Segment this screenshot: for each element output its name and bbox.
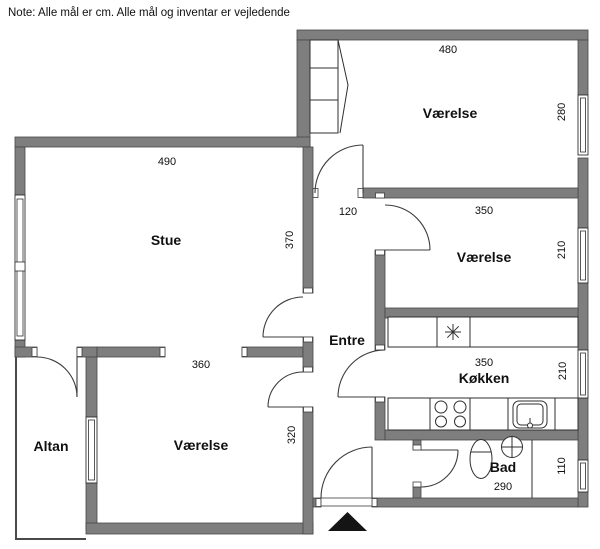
wall-segment xyxy=(86,523,313,534)
window xyxy=(578,460,588,492)
jamb xyxy=(304,407,313,412)
door-vaerelse-mid xyxy=(385,205,430,250)
jamb xyxy=(376,345,385,350)
room-label-vaerelse-top: Værelse xyxy=(423,105,478,121)
wall-segment xyxy=(297,30,588,40)
dim-stue-depth: 370 xyxy=(284,231,296,249)
wall-segment xyxy=(578,492,588,507)
kitchen-cabinet-row xyxy=(388,317,578,347)
wall-segment xyxy=(242,347,303,357)
room-label-koekken: Køkken xyxy=(459,370,510,386)
wall-segment xyxy=(15,137,310,147)
jamb xyxy=(376,250,385,255)
wardrobe-icon xyxy=(310,40,348,133)
jamb xyxy=(304,367,313,372)
toilet-icon xyxy=(470,440,492,479)
jamb xyxy=(358,189,363,198)
dim-koekken-width: 350 xyxy=(475,357,493,369)
dim-bad-width: 290 xyxy=(494,481,512,493)
wall-segment xyxy=(375,397,385,440)
wall-segment xyxy=(578,40,588,95)
dim-bad-depth: 110 xyxy=(556,457,568,475)
dim-vaerelse-mid-depth: 210 xyxy=(556,241,568,259)
dim-stue-width: 490 xyxy=(158,156,176,168)
door-vaerelse-bottom xyxy=(268,372,303,407)
wall-segment xyxy=(303,147,313,293)
dim-entre-width: 120 xyxy=(339,206,357,218)
dim-vaerelse-top-width: 480 xyxy=(439,44,457,56)
window xyxy=(578,95,588,155)
plan-note: Note: Alle mål er cm. Alle mål og invent… xyxy=(8,7,290,19)
kitchen-sink-icon xyxy=(513,401,547,428)
floor-plan: Note: Alle mål er cm. Alle mål og invent… xyxy=(0,0,600,549)
wall-segment xyxy=(363,188,578,198)
wall-segment xyxy=(372,498,578,507)
wall-segment xyxy=(413,487,421,498)
dim-koekken-depth: 210 xyxy=(557,362,569,380)
window xyxy=(578,228,588,283)
window xyxy=(578,350,588,398)
jamb xyxy=(413,482,421,487)
wall-segment xyxy=(86,357,97,417)
door-vaerelse-top xyxy=(315,145,363,193)
jamb xyxy=(32,348,37,357)
wall-segment xyxy=(375,250,385,350)
jamb xyxy=(316,499,321,507)
room-label-vaerelse-mid: Værelse xyxy=(457,249,512,265)
wall-segment xyxy=(578,158,588,228)
room-label-altan: Altan xyxy=(34,438,69,454)
entrance-arrow-icon xyxy=(328,512,367,531)
door-altan xyxy=(37,357,77,397)
jamb xyxy=(372,499,377,507)
window xyxy=(15,195,25,340)
jamb xyxy=(304,288,313,293)
wall-segment xyxy=(578,398,588,460)
jamb xyxy=(242,348,247,357)
dim-vaerelse-bottom-width: 360 xyxy=(192,359,210,371)
room-label-vaerelse-bottom: Værelse xyxy=(174,437,229,453)
door-stue xyxy=(263,297,303,337)
jamb xyxy=(376,193,385,198)
room-label-entre: Entre xyxy=(329,332,365,348)
wall-segment xyxy=(578,283,588,350)
washbasin-icon xyxy=(502,437,523,458)
kitchen-counter-row xyxy=(388,398,578,430)
door-entrance xyxy=(321,447,372,531)
wall-segment xyxy=(97,347,165,357)
wall-segment xyxy=(385,430,578,440)
dim-vaerelse-bottom-depth: 320 xyxy=(286,426,298,444)
dim-vaerelse-mid-width: 350 xyxy=(475,205,493,217)
freezer-star-icon xyxy=(445,324,461,340)
room-label-bad: Bad xyxy=(490,459,516,475)
jamb xyxy=(160,348,165,357)
wall-segment xyxy=(15,147,25,195)
door-bad xyxy=(421,450,458,487)
door-koekken xyxy=(338,350,385,397)
floor-plan-canvas: Note: Alle mål er cm. Alle mål og invent… xyxy=(0,0,600,549)
jamb xyxy=(413,445,421,450)
room-label-stue: Stue xyxy=(151,232,182,248)
wall-segment xyxy=(297,40,310,147)
jamb xyxy=(304,337,313,342)
jamb xyxy=(376,397,385,402)
window xyxy=(86,417,97,483)
jamb xyxy=(77,348,82,357)
wall-segment xyxy=(303,407,313,534)
dim-vaerelse-top-depth: 280 xyxy=(556,103,568,121)
